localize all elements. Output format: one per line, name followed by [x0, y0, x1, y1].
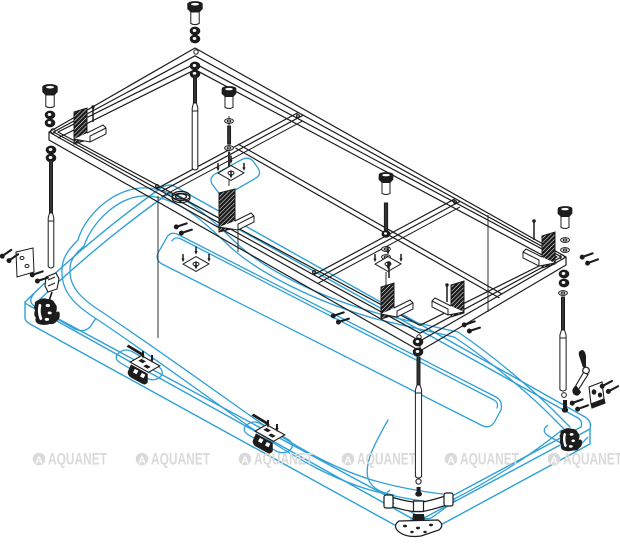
svg-text:A: A — [344, 455, 352, 467]
svg-text:A: A — [550, 455, 558, 467]
svg-text:A: A — [241, 455, 249, 467]
svg-text:AQUANET: AQUANET — [357, 451, 416, 469]
svg-text:A: A — [447, 455, 455, 467]
svg-text:AQUANET: AQUANET — [151, 451, 210, 469]
svg-text:AQUANET: AQUANET — [460, 451, 519, 469]
svg-text:AQUANET: AQUANET — [563, 451, 620, 469]
svg-text:A: A — [138, 455, 146, 467]
svg-text:AQUANET: AQUANET — [48, 451, 107, 469]
svg-text:A: A — [35, 455, 43, 467]
svg-text:AQUANET: AQUANET — [254, 451, 313, 469]
